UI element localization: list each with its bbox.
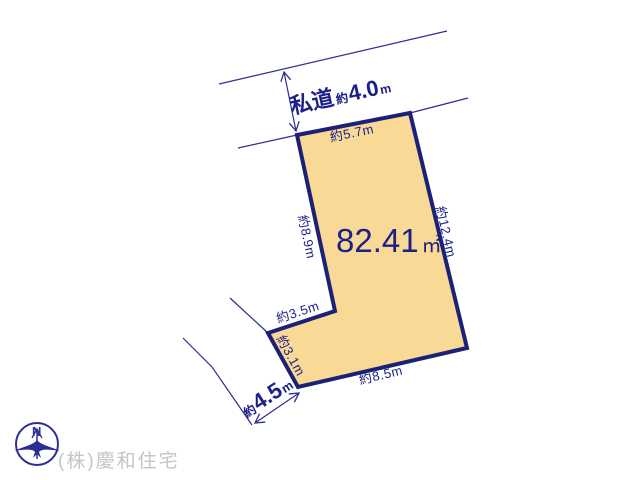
diagram-canvas: 82.41㎡ 約5.7m 約8.9m 約12.4m 約3.5m 約3.1m 約8… [0,0,640,480]
compass-north-label: N [32,424,41,439]
plot-area-value: 82.41 [336,222,419,259]
private-road-label: 私道約4.0m [288,72,393,119]
private-road-upper-edge-line [219,31,447,84]
private-road-name: 私道 [288,85,336,119]
compass: N [14,423,60,465]
side-road-outer-edge-line [183,338,252,425]
company-name: (株)慶和住宅 [58,450,180,472]
private-road-lower-edge-right-line [410,98,468,113]
side-road-inner-edge-line [230,298,268,333]
private-road-lower-edge-left-line [238,135,297,148]
private-road-width-value: 4.0 [346,75,381,106]
plot-area-unit: ㎡ [422,233,442,257]
land-plot-diagram: 82.41㎡ 約5.7m 約8.9m 約12.4m 約3.5m 約3.1m 約8… [0,0,640,480]
private-road-width-unit: m [379,81,393,97]
